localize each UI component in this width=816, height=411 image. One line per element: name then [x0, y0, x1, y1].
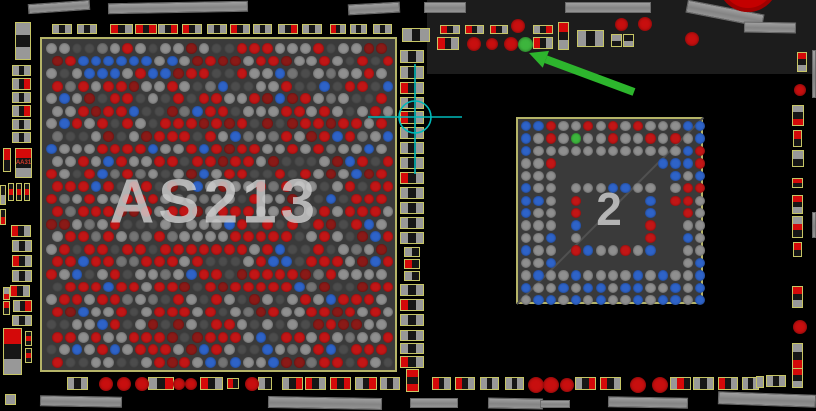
bga-ball[interactable]: [84, 269, 95, 280]
bga-ball[interactable]: [658, 295, 668, 305]
bga-ball[interactable]: [110, 68, 121, 79]
bga-ball[interactable]: [46, 194, 57, 205]
bga-ball[interactable]: [59, 194, 70, 205]
smd-component[interactable]: [797, 52, 807, 72]
bga-ball[interactable]: [683, 208, 693, 218]
bga-ball[interactable]: [249, 144, 260, 155]
smd-component[interactable]: [52, 24, 72, 34]
bga-ball[interactable]: [370, 357, 381, 368]
bga-ball[interactable]: [129, 332, 140, 343]
bga-ball[interactable]: [345, 181, 356, 192]
bga-ball[interactable]: [281, 307, 292, 318]
bga-ball[interactable]: [658, 283, 668, 293]
smd-component[interactable]: [12, 132, 31, 143]
bga-ball[interactable]: [192, 307, 203, 318]
bga-ball[interactable]: [275, 144, 286, 155]
bga-ball[interactable]: [546, 245, 556, 255]
via-pad[interactable]: [638, 17, 652, 31]
bga-ball[interactable]: [351, 169, 362, 180]
smd-component[interactable]: [110, 24, 133, 34]
bga-ball[interactable]: [521, 208, 531, 218]
bga-ball[interactable]: [230, 106, 241, 117]
bga-ball[interactable]: [192, 106, 203, 117]
smd-component[interactable]: [792, 368, 803, 388]
bga-ball[interactable]: [122, 244, 133, 255]
smd-component[interactable]: [16, 183, 22, 201]
smd-component[interactable]: [0, 209, 6, 225]
bga-ball[interactable]: [268, 307, 279, 318]
bga-ball[interactable]: [326, 269, 337, 280]
bga-ball[interactable]: [249, 68, 260, 79]
smd-component[interactable]: [792, 216, 803, 238]
bga-ball[interactable]: [179, 332, 190, 343]
bga-ball[interactable]: [122, 319, 133, 330]
bga-ball[interactable]: [620, 133, 630, 143]
bga-ball[interactable]: [52, 206, 63, 217]
bga-ball[interactable]: [154, 357, 165, 368]
bga-ball[interactable]: [218, 106, 229, 117]
bga-ball[interactable]: [103, 56, 114, 67]
bga-ball[interactable]: [205, 307, 216, 318]
bga-ball[interactable]: [313, 144, 324, 155]
bga-ball[interactable]: [596, 121, 606, 131]
bga-ball[interactable]: [59, 68, 70, 79]
bga-ball[interactable]: [122, 68, 133, 79]
smd-component[interactable]: [12, 270, 32, 282]
via-pad[interactable]: [486, 38, 498, 50]
smd-component[interactable]: [67, 377, 88, 390]
bga-ball[interactable]: [645, 233, 655, 243]
bga-ball[interactable]: [91, 357, 102, 368]
bga-ball[interactable]: [110, 244, 121, 255]
bga-ball[interactable]: [633, 121, 643, 131]
bga-ball[interactable]: [683, 133, 693, 143]
bga-ball[interactable]: [186, 43, 197, 54]
bga-ball[interactable]: [319, 131, 330, 142]
bga-ball[interactable]: [645, 245, 655, 255]
bga-ball[interactable]: [116, 56, 127, 67]
bga-ball[interactable]: [364, 118, 375, 129]
bga-ball[interactable]: [546, 208, 556, 218]
bga-ball[interactable]: [275, 68, 286, 79]
bga-ball[interactable]: [683, 158, 693, 168]
bga-ball[interactable]: [173, 244, 184, 255]
bga-ball[interactable]: [52, 156, 63, 167]
bga-ball[interactable]: [383, 231, 394, 242]
bga-ball[interactable]: [59, 93, 70, 104]
bga-ball[interactable]: [357, 357, 368, 368]
bga-ball[interactable]: [370, 206, 381, 217]
bga-ball[interactable]: [326, 219, 337, 230]
bga-ball[interactable]: [154, 332, 165, 343]
bga-ball[interactable]: [620, 283, 630, 293]
bga-ball[interactable]: [338, 344, 349, 355]
bga-ball[interactable]: [110, 294, 121, 305]
bga-ball[interactable]: [135, 118, 146, 129]
bga-ball[interactable]: [135, 344, 146, 355]
bga-ball[interactable]: [179, 81, 190, 92]
bga-ball[interactable]: [237, 244, 248, 255]
bga-ball[interactable]: [78, 106, 89, 117]
bga-ball[interactable]: [300, 319, 311, 330]
bga-ball[interactable]: [249, 244, 260, 255]
bga-ball[interactable]: [383, 181, 394, 192]
bga-ball[interactable]: [357, 131, 368, 142]
bga-ball[interactable]: [103, 106, 114, 117]
bga-ball[interactable]: [364, 93, 375, 104]
bga-ball[interactable]: [294, 256, 305, 267]
bga-ball[interactable]: [533, 146, 543, 156]
bga-ball[interactable]: [558, 121, 568, 131]
bga-ball[interactable]: [306, 357, 317, 368]
bga-ball[interactable]: [319, 307, 330, 318]
bga-ball[interactable]: [351, 319, 362, 330]
bga-ball[interactable]: [167, 131, 178, 142]
bga-ball[interactable]: [179, 106, 190, 117]
bga-ball[interactable]: [281, 357, 292, 368]
bga-ball[interactable]: [224, 244, 235, 255]
bga-ball[interactable]: [186, 294, 197, 305]
bga-ball[interactable]: [91, 156, 102, 167]
bga-ball[interactable]: [237, 269, 248, 280]
bga-ball[interactable]: [695, 270, 705, 280]
bga-ball[interactable]: [256, 307, 267, 318]
bga-ball[interactable]: [199, 319, 210, 330]
bga-ball[interactable]: [173, 43, 184, 54]
bga-ball[interactable]: [313, 118, 324, 129]
via-pad[interactable]: [504, 37, 518, 51]
bga-ball[interactable]: [306, 256, 317, 267]
bga-ball[interactable]: [148, 244, 159, 255]
smd-component[interactable]: [12, 255, 32, 267]
bga-ball[interactable]: [103, 332, 114, 343]
bga-ball[interactable]: [351, 344, 362, 355]
bga-ball[interactable]: [52, 282, 63, 293]
bga-ball[interactable]: [376, 93, 387, 104]
bga-ball[interactable]: [91, 81, 102, 92]
bga-ball[interactable]: [300, 294, 311, 305]
bga-ball[interactable]: [364, 269, 375, 280]
bga-ball[interactable]: [319, 156, 330, 167]
bga-ball[interactable]: [683, 258, 693, 268]
bga-ball[interactable]: [383, 357, 394, 368]
bga-ball[interactable]: [345, 332, 356, 343]
bga-ball[interactable]: [141, 357, 152, 368]
bga-ball[interactable]: [154, 81, 165, 92]
bga-ball[interactable]: [658, 270, 668, 280]
bga-ball[interactable]: [148, 344, 159, 355]
smd-component[interactable]: [402, 28, 430, 42]
bga-ball[interactable]: [97, 169, 108, 180]
bga-ball[interactable]: [141, 332, 152, 343]
bga-ball[interactable]: [46, 144, 57, 155]
bga-ball[interactable]: [141, 56, 152, 67]
bga-ball[interactable]: [326, 118, 337, 129]
bga-ball[interactable]: [72, 68, 83, 79]
bga-ball[interactable]: [59, 118, 70, 129]
bga-ball[interactable]: [52, 131, 63, 142]
bga-ball[interactable]: [357, 307, 368, 318]
bga-ball[interactable]: [645, 183, 655, 193]
bga-ball[interactable]: [306, 106, 317, 117]
bga-ball[interactable]: [224, 144, 235, 155]
bga-ball[interactable]: [521, 146, 531, 156]
bga-ball[interactable]: [129, 131, 140, 142]
bga-ball[interactable]: [167, 282, 178, 293]
bga-ball[interactable]: [370, 307, 381, 318]
bga-ball[interactable]: [620, 121, 630, 131]
bga-ball[interactable]: [116, 256, 127, 267]
bga-ball[interactable]: [84, 194, 95, 205]
bga-ball[interactable]: [192, 357, 203, 368]
bga-ball[interactable]: [72, 344, 83, 355]
bga-ball[interactable]: [110, 118, 121, 129]
smd-component[interactable]: [380, 377, 400, 390]
bga-ball[interactable]: [294, 307, 305, 318]
bga-ball[interactable]: [376, 43, 387, 54]
bga-ball[interactable]: [357, 231, 368, 242]
bga-ball[interactable]: [558, 283, 568, 293]
smd-component[interactable]: [718, 377, 738, 390]
bga-ball[interactable]: [179, 282, 190, 293]
smd-component[interactable]: [135, 24, 157, 34]
bga-ball[interactable]: [218, 81, 229, 92]
bga-ball[interactable]: [364, 294, 375, 305]
bga-ball[interactable]: [59, 43, 70, 54]
bga-ball[interactable]: [332, 206, 343, 217]
bga-ball[interactable]: [256, 81, 267, 92]
bga-ball[interactable]: [294, 332, 305, 343]
bga-ball[interactable]: [345, 56, 356, 67]
bga-ball[interactable]: [262, 144, 273, 155]
bga-ball[interactable]: [224, 68, 235, 79]
bga-ball[interactable]: [46, 43, 57, 54]
bga-ball[interactable]: [199, 344, 210, 355]
bga-ball[interactable]: [338, 244, 349, 255]
bga-ball[interactable]: [351, 68, 362, 79]
smd-component[interactable]: [77, 24, 97, 34]
bga-ball[interactable]: [84, 144, 95, 155]
bga-ball[interactable]: [160, 319, 171, 330]
bga-ball[interactable]: [65, 181, 76, 192]
bga-ball[interactable]: [326, 344, 337, 355]
bga-ball[interactable]: [533, 196, 543, 206]
bga-ball[interactable]: [596, 245, 606, 255]
bga-ball[interactable]: [364, 319, 375, 330]
bga-ball[interactable]: [268, 332, 279, 343]
bga-ball[interactable]: [199, 269, 210, 280]
bga-ball[interactable]: [135, 93, 146, 104]
bga-ball[interactable]: [179, 131, 190, 142]
bga-ball[interactable]: [364, 194, 375, 205]
via-pad[interactable]: [117, 377, 131, 391]
bga-ball[interactable]: [319, 332, 330, 343]
bga-ball[interactable]: [97, 93, 108, 104]
bga-ball[interactable]: [695, 220, 705, 230]
bga-ball[interactable]: [84, 68, 95, 79]
bga-ball[interactable]: [281, 81, 292, 92]
bga-ball[interactable]: [110, 319, 121, 330]
bga-ball[interactable]: [186, 244, 197, 255]
bga-ball[interactable]: [383, 156, 394, 167]
bga-ball[interactable]: [670, 133, 680, 143]
bga-ball[interactable]: [319, 106, 330, 117]
bga-ball[interactable]: [287, 269, 298, 280]
bga-ball[interactable]: [313, 319, 324, 330]
bga-ball[interactable]: [46, 169, 57, 180]
bga-ball[interactable]: [345, 131, 356, 142]
bga-ball[interactable]: [326, 319, 337, 330]
bga-ball[interactable]: [186, 319, 197, 330]
bga-ball[interactable]: [78, 231, 89, 242]
bga-ball[interactable]: [135, 294, 146, 305]
bga-ball[interactable]: [583, 183, 593, 193]
bga-ball[interactable]: [237, 319, 248, 330]
bga-ball[interactable]: [383, 106, 394, 117]
bga-ball[interactable]: [116, 131, 127, 142]
smd-component[interactable]: [766, 375, 786, 387]
bga-ball[interactable]: [275, 319, 286, 330]
bga-ball[interactable]: [357, 106, 368, 117]
bga-ball[interactable]: [281, 106, 292, 117]
bga-ball[interactable]: [65, 106, 76, 117]
bga-ball[interactable]: [345, 256, 356, 267]
bga-ball[interactable]: [633, 183, 643, 193]
bga-ball[interactable]: [179, 256, 190, 267]
smd-component[interactable]: [355, 377, 377, 390]
bga-ball[interactable]: [78, 206, 89, 217]
smd-component[interactable]: [305, 377, 326, 390]
bga-ball[interactable]: [237, 294, 248, 305]
bga-ball[interactable]: [256, 256, 267, 267]
bga-ball[interactable]: [287, 118, 298, 129]
bga-ball[interactable]: [237, 344, 248, 355]
via-pad[interactable]: [467, 37, 481, 51]
bga-ball[interactable]: [230, 56, 241, 67]
bga-ball[interactable]: [332, 332, 343, 343]
bga-ball[interactable]: [571, 146, 581, 156]
bga-ball[interactable]: [338, 68, 349, 79]
bga-ball[interactable]: [205, 357, 216, 368]
bga-ball[interactable]: [97, 118, 108, 129]
bga-ball[interactable]: [91, 106, 102, 117]
bga-ball[interactable]: [262, 294, 273, 305]
bga-ball[interactable]: [211, 118, 222, 129]
bga-ball[interactable]: [571, 208, 581, 218]
bga-ball[interactable]: [237, 68, 248, 79]
smd-component[interactable]: [611, 34, 622, 47]
smd-component[interactable]: [400, 187, 424, 199]
bga-ball[interactable]: [218, 56, 229, 67]
bga-ball[interactable]: [338, 219, 349, 230]
bga-ball[interactable]: [230, 131, 241, 142]
bga-ball[interactable]: [571, 121, 581, 131]
bga-ball[interactable]: [116, 282, 127, 293]
bga-ball[interactable]: [52, 256, 63, 267]
bga-ball[interactable]: [533, 208, 543, 218]
bga-ball[interactable]: [533, 245, 543, 255]
bga-ball[interactable]: [608, 245, 618, 255]
bga-ball[interactable]: [571, 133, 581, 143]
bga-ball[interactable]: [59, 144, 70, 155]
bga-ball[interactable]: [110, 269, 121, 280]
bga-ball[interactable]: [351, 244, 362, 255]
bga-ball[interactable]: [683, 220, 693, 230]
via-pad[interactable]: [245, 377, 259, 391]
smd-component[interactable]: [505, 377, 524, 390]
bga-ball[interactable]: [332, 81, 343, 92]
bga-ball[interactable]: [287, 43, 298, 54]
bga-ball[interactable]: [243, 106, 254, 117]
chip-2[interactable]: 2: [516, 117, 703, 304]
bga-ball[interactable]: [173, 344, 184, 355]
smd-component[interactable]: [440, 25, 460, 34]
bga-ball[interactable]: [46, 118, 57, 129]
bga-ball[interactable]: [326, 169, 337, 180]
bga-ball[interactable]: [59, 219, 70, 230]
bga-ball[interactable]: [97, 244, 108, 255]
bga-ball[interactable]: [78, 81, 89, 92]
bga-ball[interactable]: [268, 106, 279, 117]
bga-ball[interactable]: [199, 118, 210, 129]
bga-ball[interactable]: [546, 158, 556, 168]
smd-component[interactable]: [400, 157, 424, 169]
bga-ball[interactable]: [383, 307, 394, 318]
bga-ball[interactable]: [249, 118, 260, 129]
bga-ball[interactable]: [645, 295, 655, 305]
bga-ball[interactable]: [338, 169, 349, 180]
bga-ball[interactable]: [65, 81, 76, 92]
smd-component[interactable]: [12, 315, 32, 326]
bga-ball[interactable]: [218, 307, 229, 318]
bga-ball[interactable]: [243, 81, 254, 92]
bga-ball[interactable]: [243, 357, 254, 368]
bga-ball[interactable]: [218, 357, 229, 368]
bga-ball[interactable]: [116, 81, 127, 92]
bga-ball[interactable]: [52, 81, 63, 92]
bga-ball[interactable]: [351, 144, 362, 155]
bga-ball[interactable]: [521, 245, 531, 255]
bga-ball[interactable]: [148, 68, 159, 79]
smd-component[interactable]: [793, 130, 802, 147]
bga-ball[interactable]: [179, 307, 190, 318]
bga-ball[interactable]: [357, 332, 368, 343]
bga-ball[interactable]: [230, 357, 241, 368]
smd-component[interactable]: [792, 286, 803, 308]
bga-ball[interactable]: [370, 56, 381, 67]
bga-ball[interactable]: [192, 256, 203, 267]
bga-ball[interactable]: [173, 319, 184, 330]
bga-ball[interactable]: [294, 81, 305, 92]
smd-component[interactable]: [12, 65, 31, 76]
bga-ball[interactable]: [376, 169, 387, 180]
bga-ball[interactable]: [383, 81, 394, 92]
smd-component[interactable]: [792, 343, 803, 369]
bga-ball[interactable]: [300, 144, 311, 155]
smd-component[interactable]: [278, 24, 298, 34]
bga-ball[interactable]: [218, 256, 229, 267]
bga-ball[interactable]: [129, 282, 140, 293]
bga-ball[interactable]: [521, 133, 531, 143]
bga-ball[interactable]: [122, 294, 133, 305]
bga-ball[interactable]: [620, 245, 630, 255]
bga-ball[interactable]: [78, 256, 89, 267]
bga-ball[interactable]: [558, 270, 568, 280]
bga-ball[interactable]: [326, 194, 337, 205]
bga-ball[interactable]: [141, 106, 152, 117]
smd-component[interactable]: [3, 301, 10, 315]
via-pad[interactable]: [560, 378, 574, 392]
